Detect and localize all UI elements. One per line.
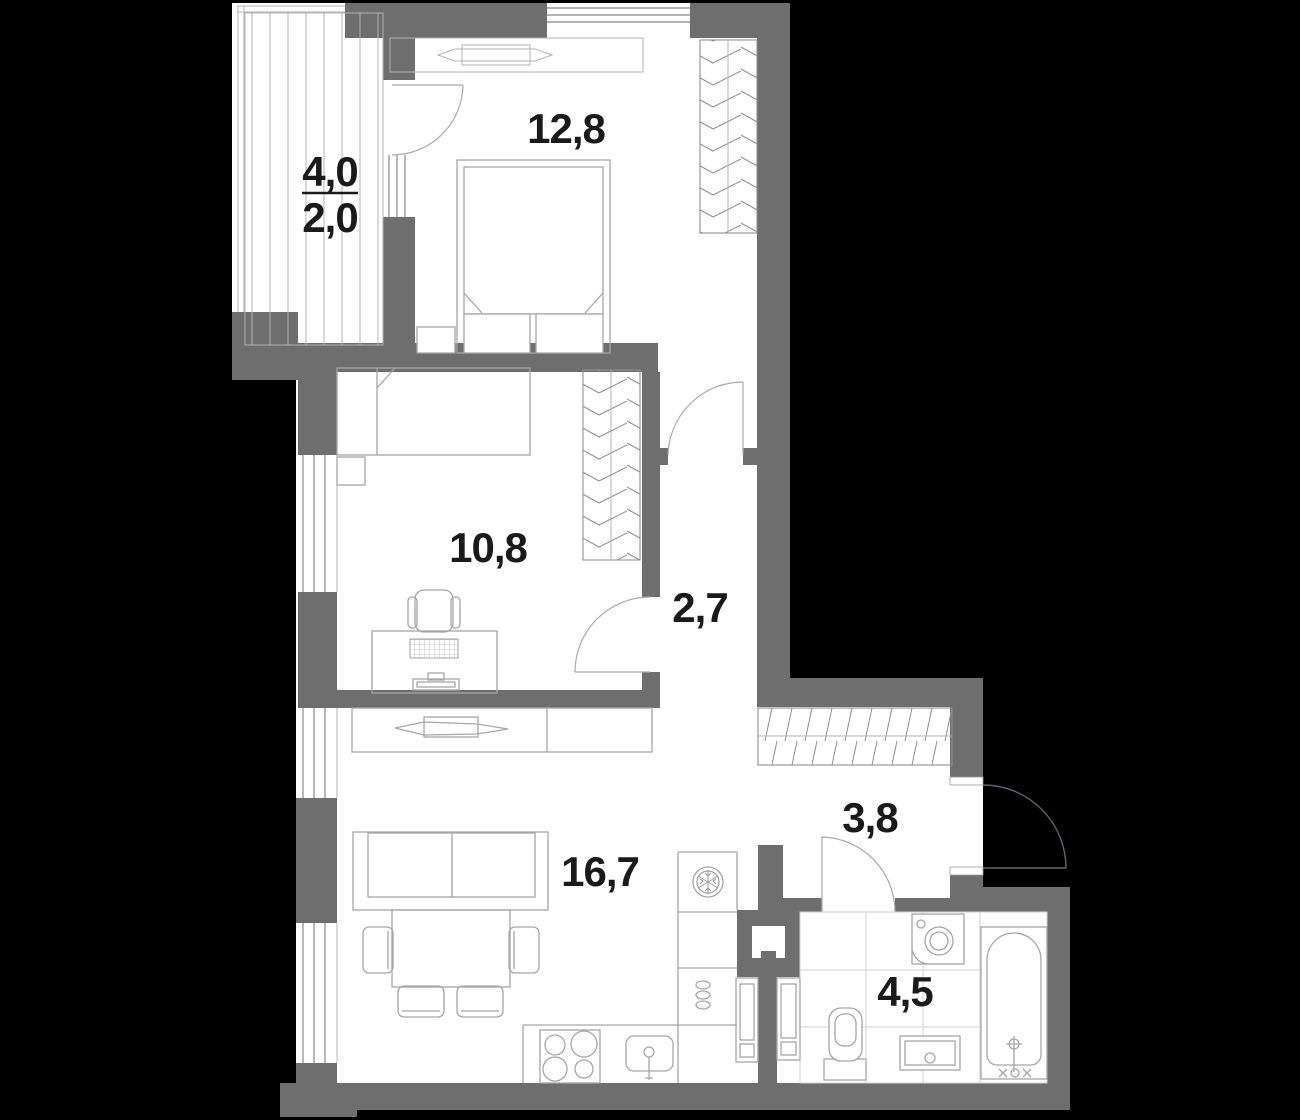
floor-plan: 4,0 2,0 12,8 10,8 2,7 3,8 16,7 4,5: [0, 0, 1300, 1120]
toilet-bowl: [829, 1008, 862, 1061]
balcony-area-total: 4,0: [302, 148, 357, 195]
bathroom-area: 4,5: [877, 968, 933, 1015]
pillow: [536, 314, 603, 353]
pillow: [464, 314, 530, 353]
corridor-area: 2,7: [672, 584, 727, 631]
kids-room-area: 10,8: [449, 524, 527, 571]
nightstand: [417, 327, 455, 353]
washing-machine: [912, 914, 964, 964]
bathtub: [981, 927, 1047, 1079]
bedroom-wardrobe: [700, 40, 757, 233]
balcony-area-counted: 2,0: [302, 194, 357, 241]
keyboard: [410, 639, 458, 658]
tall-cabinet-bath: [777, 978, 800, 1060]
toilet: [824, 1008, 866, 1080]
toilet-tank: [824, 1059, 866, 1080]
floor-plan-svg: 4,0 2,0 12,8 10,8 2,7 3,8 16,7 4,5: [0, 0, 1300, 1120]
hallway-area: 3,8: [842, 794, 898, 841]
kids-wardrobe: [583, 370, 640, 560]
living-kitchen-area: 16,7: [561, 848, 639, 895]
hallway-wardrobe: [758, 708, 952, 765]
bedroom-area: 12,8: [527, 105, 605, 152]
vanity-sink: [900, 1036, 960, 1070]
duct-shaft-notch: [761, 951, 776, 958]
fridge: [693, 867, 723, 897]
